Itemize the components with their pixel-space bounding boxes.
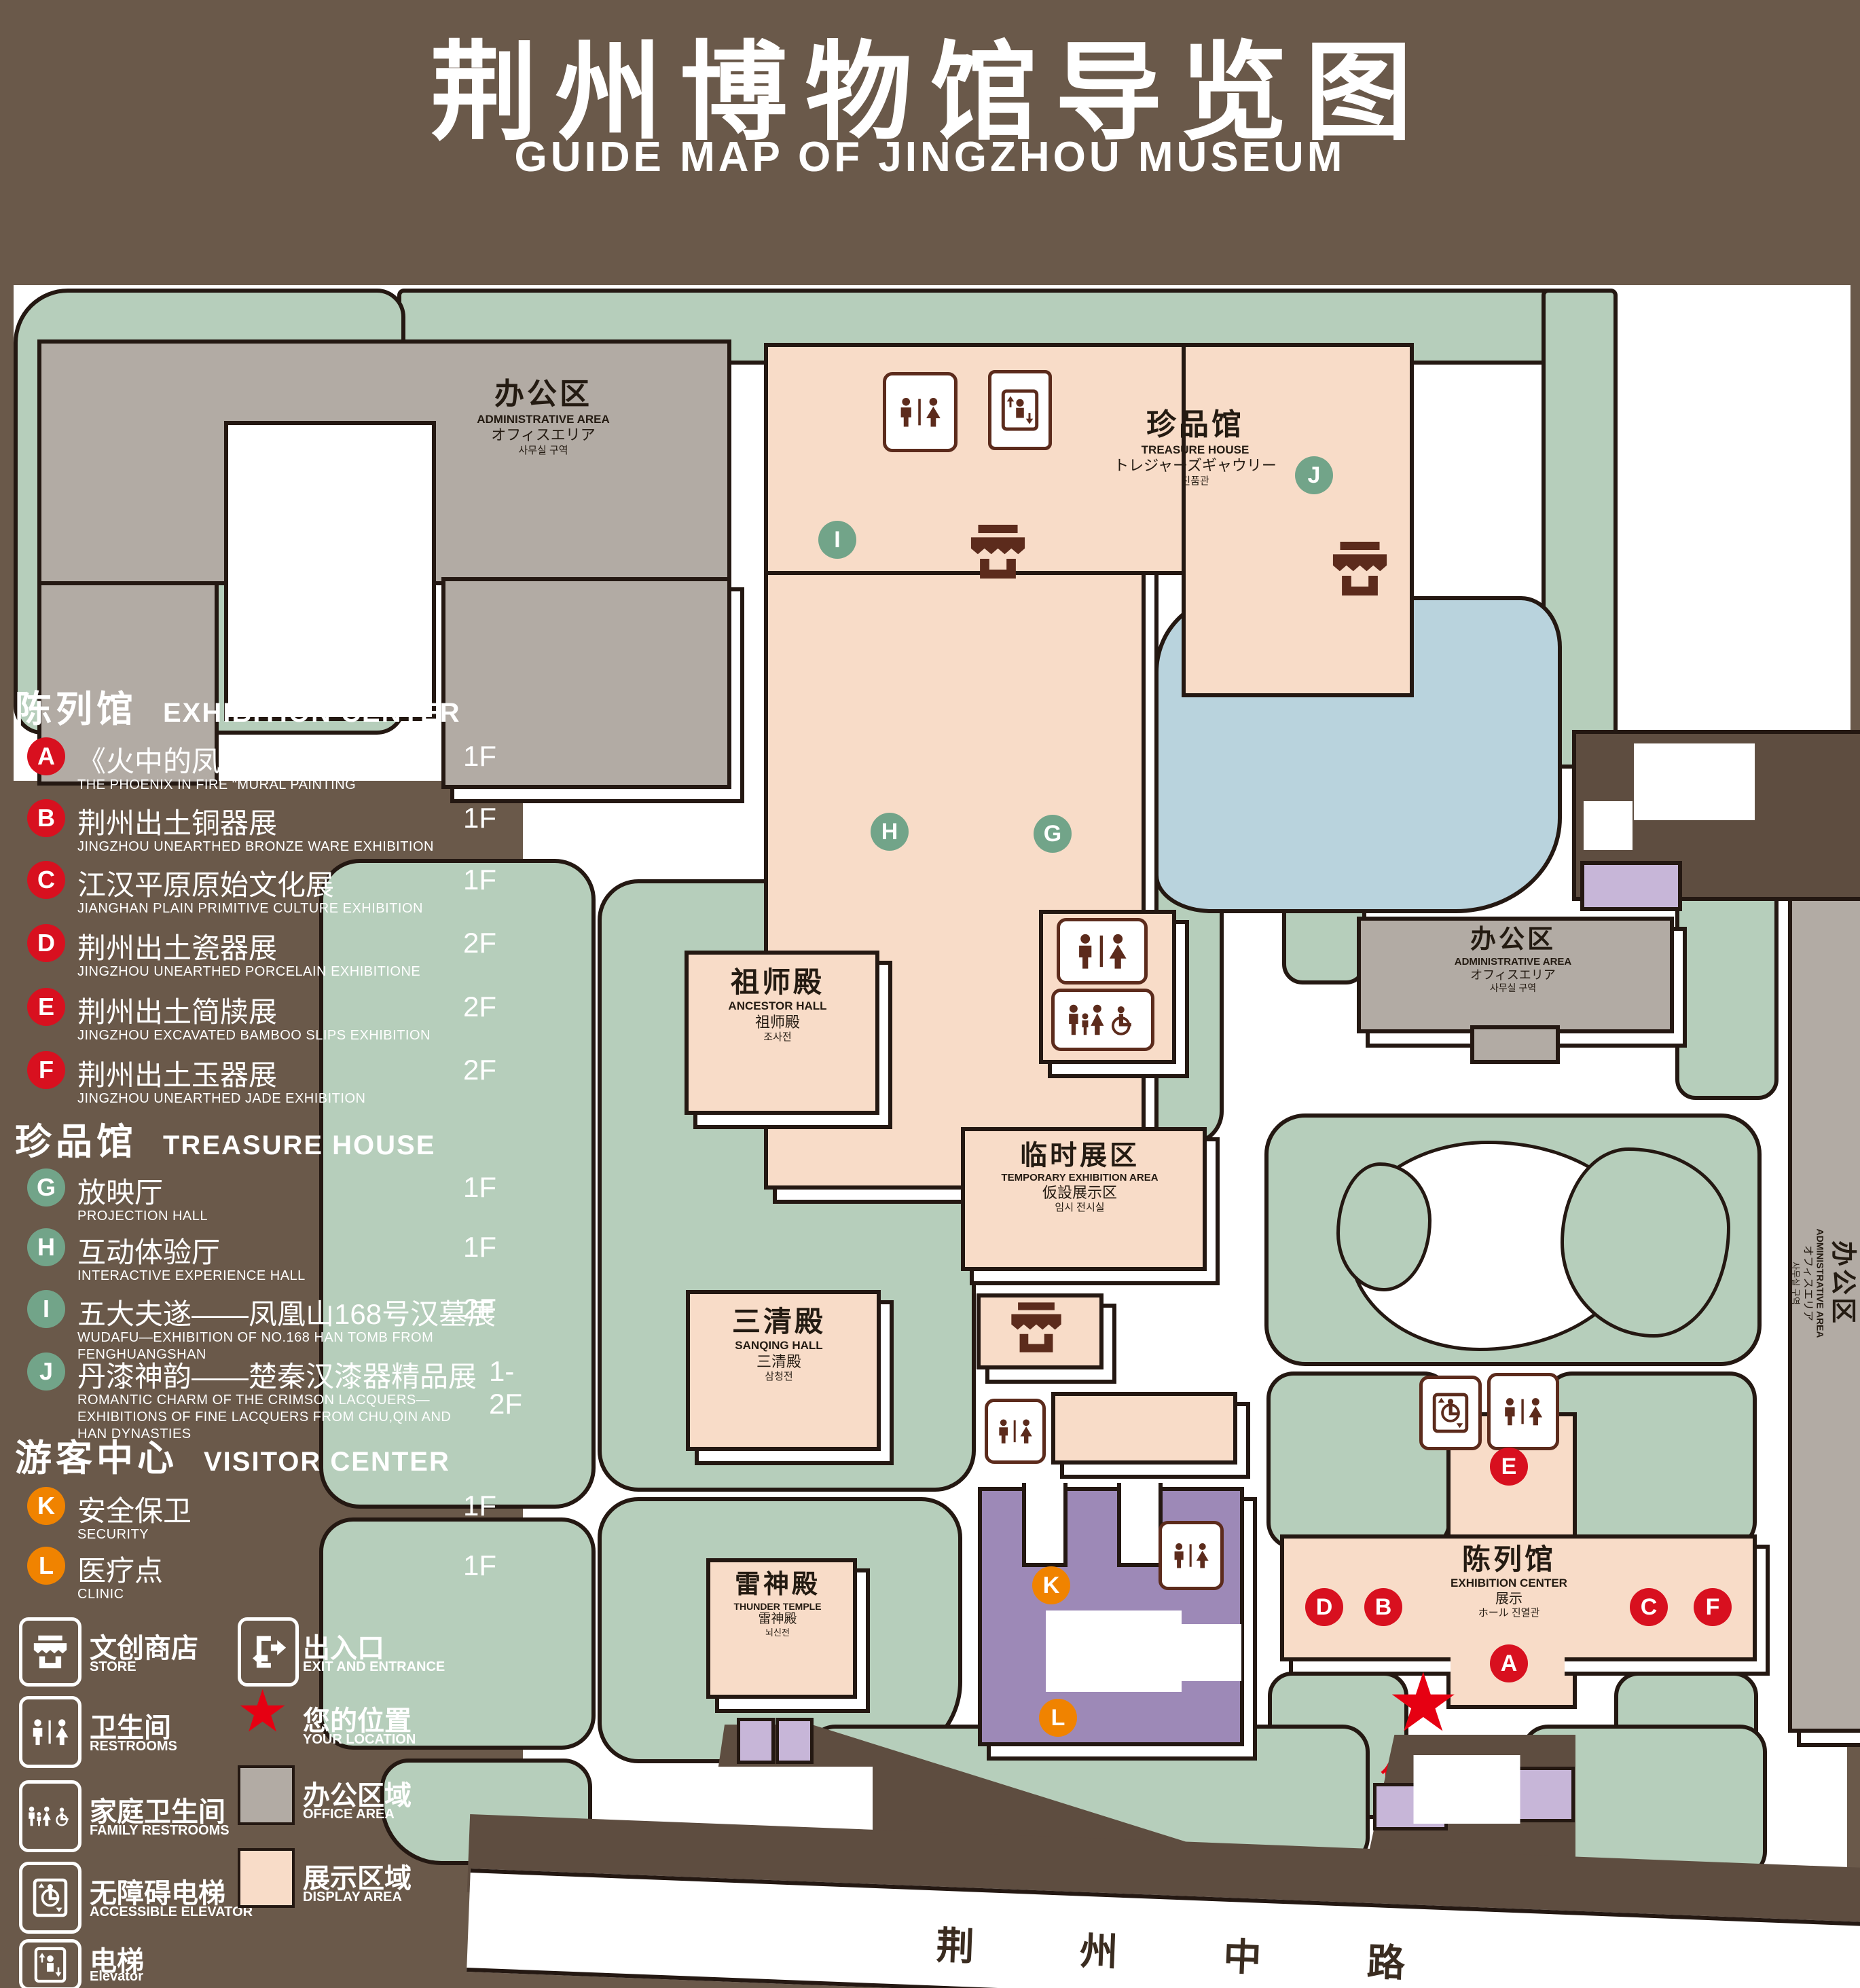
marker-H: H	[871, 813, 909, 851]
exit-icon	[238, 1617, 299, 1687]
elevator-icon	[19, 1939, 81, 1988]
guide-map-canvas: 荆州博物馆导览图 GUIDE MAP OF JINGZHOU MUSEUM 办公…	[0, 0, 1860, 1988]
building-temp-wing	[1051, 1392, 1237, 1465]
building-treasure-right	[1182, 343, 1414, 697]
label-exit-mid: 出入口 EXIT AND ENTRANCE 出入口 출입구	[1634, 743, 1755, 820]
marker-I: I	[818, 521, 856, 559]
marker-E: E	[1490, 1448, 1528, 1486]
marker-G: G	[1034, 815, 1072, 853]
store-icon	[1006, 1300, 1066, 1355]
marker-F: F	[1694, 1588, 1732, 1626]
family-restroom-icon	[1051, 989, 1154, 1051]
gate-building	[737, 1718, 775, 1764]
legend-restroom-caption: RESTROOMS	[90, 1739, 177, 1754]
restroom-icon	[1487, 1373, 1559, 1450]
restroom-icon	[985, 1399, 1046, 1464]
store-icon	[1328, 540, 1392, 597]
lawn-right-admin-b	[1675, 868, 1779, 1100]
visitor-notch	[1022, 1483, 1068, 1567]
label-admin-right: 办公区 ADMINISTRATIVE AREA オフィスエリア 사무실 구역	[1455, 925, 1572, 994]
restroom-icon	[1159, 1521, 1224, 1590]
page-subtitle: GUIDE MAP OF JINGZHOU MUSEUM	[0, 133, 1860, 181]
marker-D: D	[1305, 1588, 1343, 1626]
legend-display-caption: DISPLAY AREA	[303, 1890, 402, 1905]
label-treasure: 珍品馆 TREASURE HOUSE トレジャーズギャウリー 진품관	[1114, 407, 1277, 487]
legend-section-exhibition: 陈列馆EXHIBITION CENTER	[15, 679, 460, 733]
legend-elevator-caption: Elevator	[90, 1969, 143, 1985]
store-icon	[1179, 1624, 1241, 1681]
marker-B: B	[1364, 1588, 1402, 1626]
exit-icon	[1584, 801, 1633, 850]
location-star: ★	[236, 1682, 289, 1741]
legend-section-visitor: 游客中心VISITOR CENTER	[15, 1428, 450, 1481]
building-admin-right-foot	[1470, 1025, 1560, 1064]
legend-exit-caption: EXIT AND ENTRANCE	[303, 1659, 445, 1675]
label-ancestor: 祖师殿 ANCESTOR HALL 祖师殿 조사전	[728, 965, 826, 1044]
label-exhibition: 陈列馆 EXHIBITION CENTER 展示 ホール 진열관	[1451, 1543, 1567, 1619]
office-area-swatch	[238, 1765, 295, 1825]
marker-J: J	[1295, 456, 1333, 494]
restroom-icon	[883, 372, 958, 452]
legend-section-treasure: 珍品馆TREASURE HOUSE	[15, 1111, 435, 1165]
family-restroom-icon	[19, 1780, 81, 1852]
marker-C: C	[1630, 1588, 1668, 1626]
building-admin-courtyard	[224, 421, 436, 721]
legend-location-caption: YOUR LOCATION	[303, 1732, 416, 1748]
legend-accessible-caption: ACCESSIBLE ELEVATOR	[90, 1904, 253, 1920]
store-icon	[19, 1617, 81, 1687]
store-icon	[966, 523, 1030, 581]
label-exit-br: 出入口 EXIT AND ENTRANCE 出入口 출입구	[1414, 1755, 1520, 1824]
restroom-icon	[19, 1696, 81, 1768]
accessible-elevator-icon	[1419, 1376, 1482, 1450]
label-admin-strip: 办公区 ADMINISTRATIVE AREA オフィスエリア 사무실 구역	[1789, 1229, 1858, 1338]
label-visitor: 游客中心 VISITOR CENTER ビジターセンター 관광객 센터	[1046, 1610, 1182, 1692]
legend-office-caption: OFFICE AREA	[303, 1807, 395, 1822]
visitor-notch	[1117, 1483, 1163, 1567]
restroom-icon	[1057, 918, 1148, 984]
marker-A: A	[1490, 1644, 1528, 1682]
accessible-elevator-icon	[19, 1862, 81, 1934]
gate-building	[776, 1718, 814, 1764]
gate-building	[1580, 861, 1682, 911]
your-location-star: ★	[1387, 1662, 1460, 1744]
label-temporary: 临时展区 TEMPORARY EXHIBITION AREA 仮設展示区 임시 …	[1001, 1139, 1158, 1214]
label-admin-tl: 办公区 ADMINISTRATIVE AREA オフィスエリア 사무실 구역	[477, 377, 610, 457]
legend-family-caption: FAMILY RESTROOMS	[90, 1823, 230, 1839]
display-area-swatch	[238, 1848, 295, 1908]
label-sanqing: 三清殿 SANQING HALL 三清殿 삼청전	[732, 1305, 826, 1383]
label-thunder: 雷神殿 THUNDER TEMPLE 雷神殿 뇌신전	[733, 1570, 821, 1638]
marker-L: L	[1039, 1699, 1077, 1737]
marker-K: K	[1032, 1566, 1070, 1604]
elevator-icon	[988, 370, 1052, 450]
legend-store-caption: STORE	[90, 1659, 136, 1675]
